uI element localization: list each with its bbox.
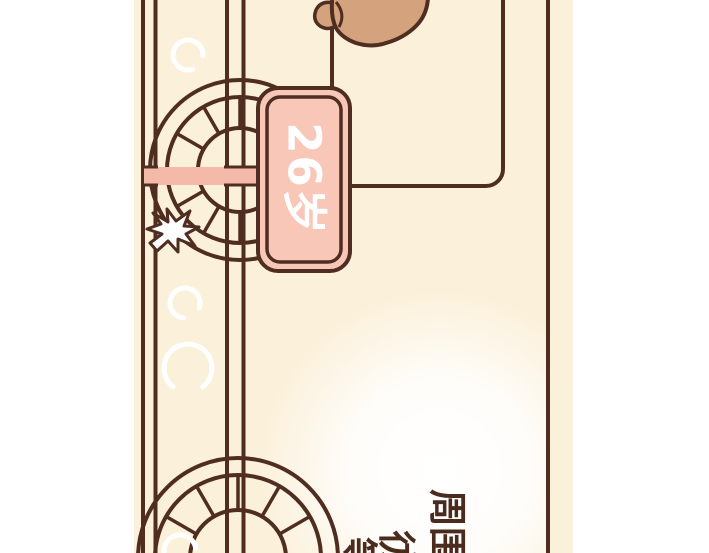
comic-page: 26岁 周围 彷 等 — [0, 0, 709, 553]
signpost-bar — [144, 167, 260, 185]
caption-row-1: 周围 — [425, 489, 469, 553]
comic-strip: 26岁 周围 彷 等 — [0, 0, 709, 553]
sign-label: 26岁 — [278, 122, 331, 236]
caption-row-3: 等 — [336, 537, 380, 553]
sign-board: 26岁 — [258, 88, 350, 271]
